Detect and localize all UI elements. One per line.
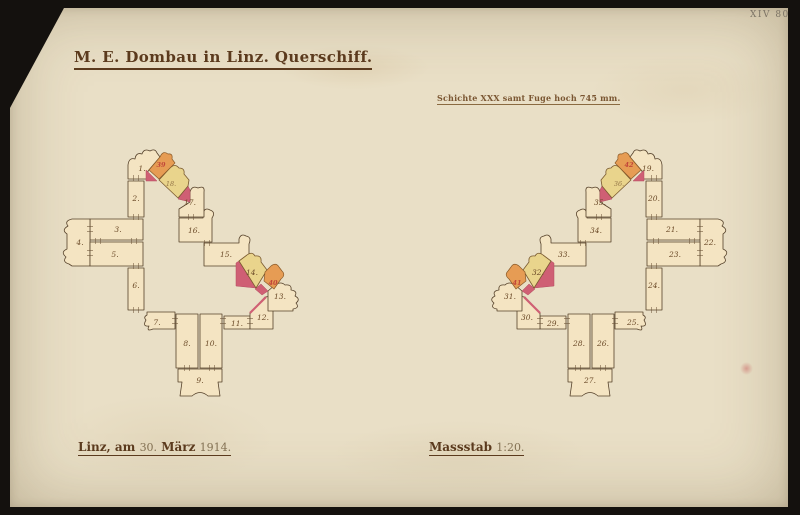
stone-label: 35. xyxy=(594,198,606,207)
stone-label: 3. xyxy=(114,225,121,234)
stone-label: 16. xyxy=(188,226,200,235)
right-plan xyxy=(492,150,727,396)
date-day: 30. xyxy=(140,441,158,454)
red-stone-number: 39 xyxy=(156,161,166,169)
stone-label: 23. xyxy=(668,250,681,259)
stone-label: 7. xyxy=(153,318,160,327)
stone-label: 5. xyxy=(111,250,118,259)
stone-label: 11. xyxy=(231,319,243,328)
stone-label: 9. xyxy=(196,376,203,385)
stone-label: 2. xyxy=(131,194,139,203)
stone-label: 14. xyxy=(246,268,258,277)
stone-label: 27. xyxy=(583,376,596,385)
scale-label: Massstab xyxy=(429,440,492,454)
stone-label: 36. xyxy=(614,180,624,188)
red-stone-number: 41 xyxy=(512,279,521,287)
stone-label: 8. xyxy=(183,339,190,348)
stone-label: 12. xyxy=(257,313,269,322)
stone-label: 31. xyxy=(504,292,516,301)
red-stone-number: 42 xyxy=(624,161,634,169)
stone-label: 13. xyxy=(274,292,286,301)
stone-plan-drawing: 1. 2. 3. 4. 5. 6. 7. 8. 9. 10. 11. 12. 1… xyxy=(0,0,800,515)
stone-label: 32. xyxy=(532,268,544,277)
stone-label: 19. xyxy=(642,164,654,173)
stone-label: 4. xyxy=(75,238,83,247)
stone-label: 10. xyxy=(205,339,217,348)
stone-label: 6. xyxy=(132,281,139,290)
photo-background: XIV 80 M. E. Dombau in Linz. Querschiff.… xyxy=(0,0,800,515)
red-stone-number: 40 xyxy=(268,279,278,287)
date-year: 1914. xyxy=(200,441,232,454)
stone-label: 18. xyxy=(166,180,176,188)
stone-label: 26. xyxy=(596,339,609,348)
stone-label: 34. xyxy=(590,226,602,235)
date-prefix: Linz, am xyxy=(78,440,135,454)
stone-label: 15. xyxy=(220,250,232,259)
stone-label: 29. xyxy=(546,319,559,328)
stone-label: 30. xyxy=(521,313,533,322)
scale-line: Massstab 1:20. xyxy=(429,440,524,456)
stone-label: 22. xyxy=(703,238,716,247)
stone-label: 21. xyxy=(665,225,678,234)
left-plan xyxy=(63,150,298,396)
stone-label: 33. xyxy=(558,250,570,259)
stone-label: 25. xyxy=(626,318,639,327)
stone-label: 20. xyxy=(647,194,660,203)
stone-label: 17. xyxy=(184,198,196,207)
date-line: Linz, am 30. März 1914. xyxy=(78,440,231,456)
stone-label: 28. xyxy=(572,339,585,348)
stone-label: 1. xyxy=(138,164,145,173)
scale-value: 1:20. xyxy=(496,441,524,454)
stone-label: 24. xyxy=(647,281,660,290)
date-month: März xyxy=(161,440,195,454)
